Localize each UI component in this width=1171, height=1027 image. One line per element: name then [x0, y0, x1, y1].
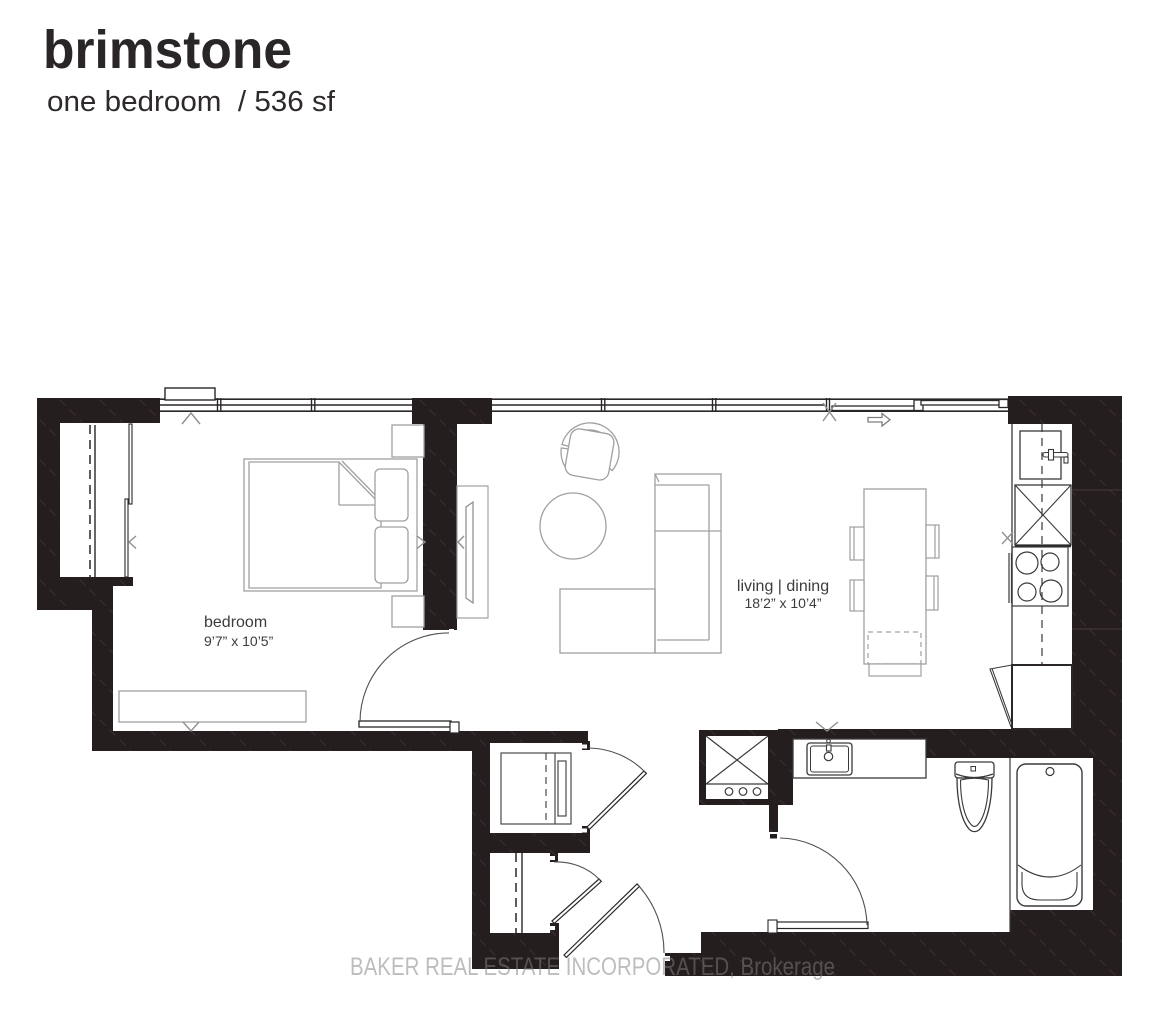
- svg-text:9’7” x 10’5”: 9’7” x 10’5”: [204, 633, 274, 649]
- svg-text:18’2” x 10’4”: 18’2” x 10’4”: [744, 595, 821, 611]
- svg-text:bedroom: bedroom: [204, 614, 267, 631]
- svg-text:one bedroom / 536 sf: one bedroom / 536 sf: [47, 86, 336, 118]
- svg-text:living | dining: living | dining: [737, 578, 829, 595]
- svg-text:BAKER REAL ESTATE INCORPORATED: BAKER REAL ESTATE INCORPORATED, Brokerag…: [350, 953, 835, 981]
- svg-text:brimstone: brimstone: [43, 20, 292, 80]
